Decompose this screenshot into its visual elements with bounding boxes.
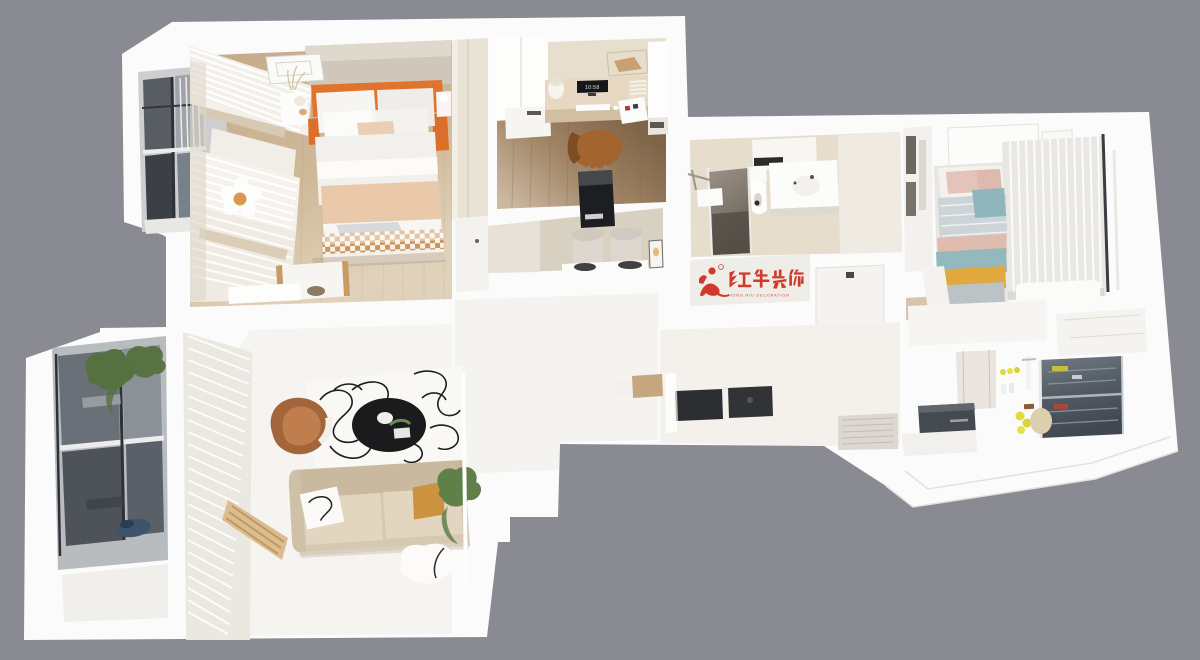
- svg-text:HONG NIU DECORATION: HONG NIU DECORATION: [729, 294, 790, 298]
- svg-text:10:58: 10:58: [585, 85, 600, 91]
